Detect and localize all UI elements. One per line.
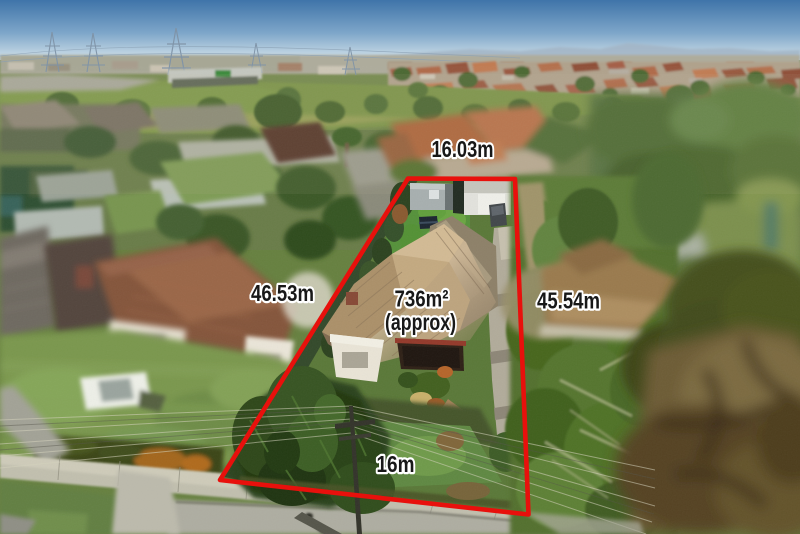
svg-text:16m: 16m [377, 451, 415, 477]
svg-text:736m²: 736m² [395, 286, 449, 312]
svg-text:(approx): (approx) [385, 309, 456, 335]
svg-text:46.53m: 46.53m [251, 280, 314, 306]
svg-text:45.54m: 45.54m [537, 288, 600, 314]
svg-text:16.03m: 16.03m [432, 136, 494, 162]
